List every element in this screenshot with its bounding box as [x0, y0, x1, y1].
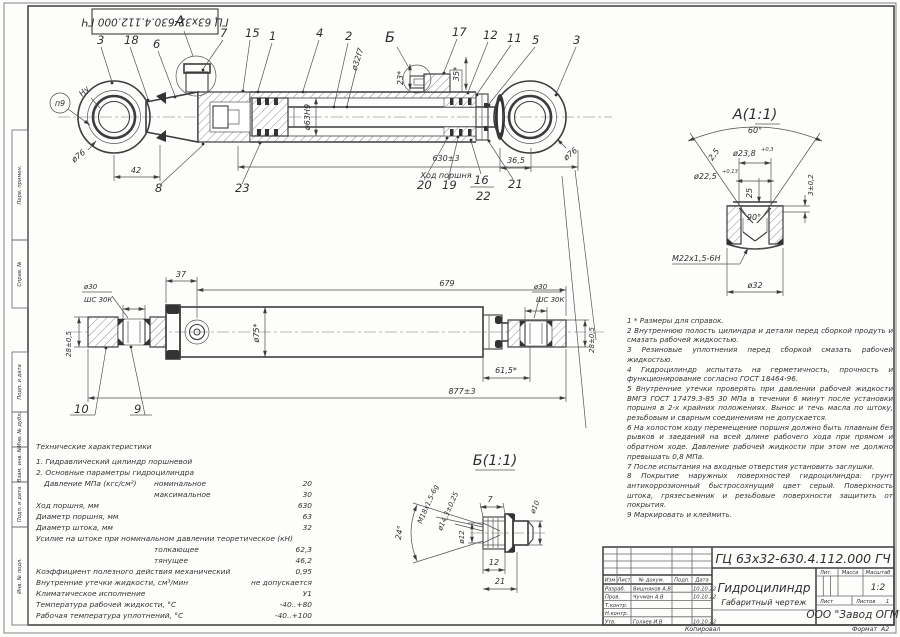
tech-value: 32: [303, 522, 312, 533]
col-list: Лист: [616, 578, 631, 584]
tech-label: Усилие на штоке при номинальном давлении…: [36, 533, 293, 544]
detail-a-body: [727, 202, 783, 249]
dim-angle-35: 35*: [452, 57, 466, 90]
svg-text:ø32f7: ø32f7: [349, 46, 365, 72]
tech-label: Диаметр штока, мм: [36, 522, 113, 533]
technical-characteristics: Технические характеристики 1. Гидравличе…: [36, 441, 314, 621]
svg-text:10.10.22: 10.10.22: [693, 619, 716, 625]
svg-text:3±0,2: 3±0,2: [807, 174, 815, 196]
svg-text:Б: Б: [385, 30, 395, 46]
svg-text:Разраб.: Разраб.: [605, 587, 625, 593]
svg-text:35*: 35*: [452, 67, 461, 81]
svg-text:Н.контр.: Н.контр.: [605, 611, 628, 617]
svg-text:877±3: 877±3: [448, 387, 475, 396]
svg-text:21: 21: [508, 177, 523, 191]
svg-text:3: 3: [573, 33, 580, 47]
svg-text:22: 22: [476, 189, 491, 203]
dim-rod-32: ø32f7: [346, 46, 366, 108]
col-izm: Изм: [605, 578, 616, 584]
svg-text:630±3: 630±3: [432, 154, 459, 163]
svg-text:Т.контр.: Т.контр.: [605, 603, 627, 609]
tech-label: Климатическое исполнение: [36, 588, 145, 599]
svg-text:2: 2: [345, 29, 352, 43]
svg-text:24°: 24°: [394, 525, 405, 541]
format-label: Формат: [852, 626, 877, 633]
svg-text:10.10.22: 10.10.22: [693, 587, 716, 593]
sheets-label: Листов: [855, 599, 875, 605]
col-podp: Подп.: [674, 578, 690, 584]
tech-value: -40..+80: [280, 599, 312, 610]
svg-text:42: 42: [131, 166, 141, 175]
marking-symbol-text: п9: [55, 99, 65, 108]
svg-text:ø30: ø30: [83, 283, 98, 291]
tech-label: Рабочая температура уплотнений, °С: [36, 610, 183, 621]
dim-b-12len: 12: [483, 549, 505, 574]
svg-text:61,5*: 61,5*: [495, 366, 517, 375]
svg-text:5: 5: [532, 33, 539, 47]
scale-label: Масштаб: [866, 570, 891, 576]
svg-text:28±0,5: 28±0,5: [588, 327, 596, 353]
detail-a: А(1:1) 60° 2,5 ø23,8 +0,3 ø22,5 +0,13 25…: [672, 107, 822, 296]
svg-text:ø76: ø76: [561, 146, 579, 163]
detail-b: Б(1:1) 24° М18х1,5-6g ø14,3±0,25: [394, 453, 548, 593]
technical-notes: 1 * Размеры для справок. 2 Внутреннюю по…: [627, 316, 893, 520]
drawing-sheet: Перв. примен. Справ. № Подп. и дата Инв.…: [0, 0, 900, 637]
tech-sublabel: максимальное: [154, 489, 211, 500]
note-8: 8 Покрытие наружных поверхностей гидроци…: [627, 471, 893, 510]
top-code-text: ГЦ 63х32-630.4.112.000 ГЧ: [81, 16, 228, 28]
note-4: 4 Гидроцилиндр испытать на герметичность…: [627, 365, 893, 384]
tech-value: 0,95: [296, 566, 312, 577]
svg-text:ø76: ø76: [69, 148, 87, 165]
dim-28-right: 28±0,5: [566, 320, 596, 353]
piston: [252, 98, 288, 136]
dim-bearing-right: ø30 ШС 30К: [525, 283, 566, 321]
doc-type: Габаритный чертеж: [722, 598, 808, 607]
svg-text:ø12: ø12: [458, 530, 466, 545]
tech-label: Коэффициент полезного действия механичес…: [36, 566, 230, 577]
rear-head: [146, 92, 250, 142]
svg-text:ø23,8: ø23,8: [732, 149, 756, 158]
dim-stroke-630: 630±3 Ход поршня: [238, 146, 578, 180]
tech-label: Ход поршня, мм: [36, 500, 99, 511]
note-6: 6 На холостом ходу перемещение поршня до…: [627, 423, 893, 462]
lit-label: Лит.: [819, 570, 832, 576]
projection-line: [562, 176, 586, 428]
svg-text:8: 8: [155, 181, 162, 195]
svg-text:36,5: 36,5: [507, 156, 525, 165]
part-name: Гидроцилиндр: [718, 581, 811, 595]
svg-text:Голяев И.В: Голяев И.В: [633, 619, 663, 625]
margin-stamp-3: Инв. № дубл.: [17, 412, 23, 448]
note-7: 7 После испытания на входные отверстия у…: [627, 462, 893, 472]
svg-text:Б(1:1): Б(1:1): [473, 453, 518, 469]
svg-text:12: 12: [489, 558, 499, 567]
svg-text:ø32: ø32: [746, 281, 762, 290]
dim-36-5: 36,5: [500, 148, 531, 172]
margin-stamps: Перв. примен. Справ. № Подп. и дата Инв.…: [12, 130, 28, 625]
svg-text:1: 1: [269, 29, 276, 43]
outline-view: 37 679 ø75* ø30 ШС 30К ø30 ШС 30К: [65, 270, 604, 416]
footer-strip: Копировал Формат А2: [685, 626, 889, 633]
svg-text:7: 7: [220, 26, 228, 40]
rod-eye-side: [508, 320, 566, 347]
note-9: 9 Маркировать и клеймить.: [627, 510, 893, 520]
svg-text:ø63Н9: ø63Н9: [303, 104, 312, 131]
scale-value: 1:2: [871, 583, 886, 593]
tech-label: Диаметр поршня, мм: [36, 511, 119, 522]
margin-stamp-5: Подп. и дата: [17, 487, 23, 522]
svg-text:ø30: ø30: [533, 283, 548, 291]
note-3: 3 Резиновые уплотнения перед сборкой сма…: [627, 345, 893, 364]
tech-label: Температура рабочей жидкости, °С: [36, 599, 176, 610]
svg-text:21: 21: [495, 577, 505, 586]
tech-value: 46,2: [296, 555, 312, 566]
mass-label: Масса: [842, 570, 859, 576]
dim-61-5: 61,5*: [483, 347, 530, 382]
svg-text:90°: 90°: [747, 213, 761, 222]
tech-value: -40..+100: [275, 610, 312, 621]
main-section-view: п9 Ну: [50, 14, 612, 428]
doc-code: ГЦ 63х32-630.4.112.000 ГЧ: [715, 551, 891, 566]
svg-text:ø22,5: ø22,5: [693, 172, 717, 181]
col-date: Дата: [694, 578, 708, 584]
margin-stamp-6: Инв. № подл.: [17, 558, 23, 594]
svg-text:10.10.22: 10.10.22: [693, 595, 716, 601]
svg-text:18: 18: [124, 33, 139, 47]
dim-28-left: 28±0,5: [65, 317, 88, 357]
svg-text:Чучман А.В: Чучман А.В: [633, 595, 664, 601]
note-2: 2 Внутреннюю полость цилиндра и детали п…: [627, 326, 893, 345]
svg-text:16: 16: [474, 173, 489, 187]
svg-text:19: 19: [442, 178, 457, 192]
note-1: 1 * Размеры для справок.: [627, 316, 893, 326]
svg-text:А: А: [174, 14, 185, 30]
dim-bearing-left: ø30 ШС 30К: [82, 283, 145, 319]
svg-text:М18х1,5-6g: М18х1,5-6g: [416, 483, 440, 525]
svg-text:3: 3: [97, 33, 104, 47]
position-labels-bottom: 8 23 20 19 16 22 21: [155, 136, 523, 203]
svg-text:ø10: ø10: [528, 499, 541, 516]
svg-text:17: 17: [452, 25, 467, 39]
svg-text:28±0,5: 28±0,5: [65, 331, 73, 357]
rear-eye-side: [88, 317, 166, 347]
company-name: ООО "Завод ОГМ": [806, 609, 900, 621]
kopiroval-label: Копировал: [685, 626, 720, 633]
tech-value: 30: [303, 489, 312, 500]
tech-value: 630: [298, 500, 312, 511]
dim-42: 42: [114, 145, 160, 181]
note-5: 5 Внутренние утечки проверять при давлен…: [627, 384, 893, 423]
tech-line: 1. Гидравлический цилиндр поршневой: [36, 456, 192, 467]
sheets-value: 1: [886, 599, 889, 605]
svg-text:6: 6: [153, 37, 160, 51]
tech-value: 20: [303, 478, 312, 489]
projection-line-2: [575, 170, 596, 340]
svg-text:Утв.: Утв.: [605, 619, 616, 625]
tech-line: 2. Основные параметры гидроцилиндра: [36, 467, 194, 478]
position-labels-side: 10 9: [70, 346, 152, 416]
dim-angle-23: 23*: [396, 64, 410, 90]
tech-sublabel: толкающее: [154, 544, 199, 555]
svg-text:15: 15: [245, 26, 260, 40]
svg-text:М22х1,5-6Н: М22х1,5-6Н: [672, 254, 721, 263]
tech-sublabel: тянущее: [154, 555, 188, 566]
tech-value: 63: [303, 511, 312, 522]
svg-text:4: 4: [316, 26, 323, 40]
dim-679: 679: [197, 279, 566, 316]
dim-eye-76-right: ø76: [557, 139, 579, 163]
svg-text:23*: 23*: [396, 71, 405, 85]
port-a-boss: [176, 31, 216, 96]
svg-text:37: 37: [176, 270, 187, 279]
tech-value: не допускается: [251, 577, 312, 588]
svg-text:7: 7: [487, 495, 493, 504]
margin-stamp-1: Справ. №: [17, 261, 23, 286]
tech-sublabel: номинальное: [154, 478, 206, 489]
svg-text:ШС 30К: ШС 30К: [84, 296, 114, 304]
tech-label: Внутренние утечки жидкости, см³/мин: [36, 577, 188, 588]
svg-text:10: 10: [74, 402, 89, 416]
svg-text:+0,3: +0,3: [761, 147, 774, 153]
svg-text:А(1:1): А(1:1): [732, 107, 778, 123]
format-value: А2: [880, 626, 889, 633]
svg-text:Пров.: Пров.: [605, 595, 620, 601]
svg-text:9: 9: [134, 402, 141, 416]
weld-mark-text: Ну: [77, 84, 91, 98]
tech-value: 62,3: [296, 544, 312, 555]
svg-text:25: 25: [745, 188, 754, 198]
margin-stamp-0: Перв. примен.: [17, 166, 23, 205]
margin-stamp-4: Взам. инв. №: [17, 447, 23, 482]
svg-text:679: 679: [439, 279, 454, 288]
svg-text:60°: 60°: [748, 126, 762, 135]
svg-text:+0,13: +0,13: [722, 169, 738, 175]
tech-value: У1: [303, 588, 312, 599]
col-doc: № докум.: [638, 578, 665, 584]
sheet-label: Лист: [819, 599, 834, 605]
svg-text:12: 12: [483, 28, 498, 42]
top-code-stamp: ГЦ 63х32-630.4.112.000 ГЧ: [81, 9, 228, 34]
svg-text:ø75*: ø75*: [252, 323, 261, 343]
dim-b-10dia: ø10: [528, 499, 543, 545]
svg-text:ШС 30К: ШС 30К: [536, 296, 566, 304]
margin-stamp-2: Подп. и дата: [17, 364, 23, 399]
tech-heading: Технические характеристики: [36, 441, 314, 452]
svg-text:Вишняков А.В: Вишняков А.В: [633, 587, 671, 593]
svg-text:11: 11: [507, 31, 522, 45]
tech-label: Давление МПа (кгс/см²): [44, 478, 137, 489]
title-block: Изм Лист № докум. Подп. Дата Разраб. Виш…: [603, 547, 900, 625]
